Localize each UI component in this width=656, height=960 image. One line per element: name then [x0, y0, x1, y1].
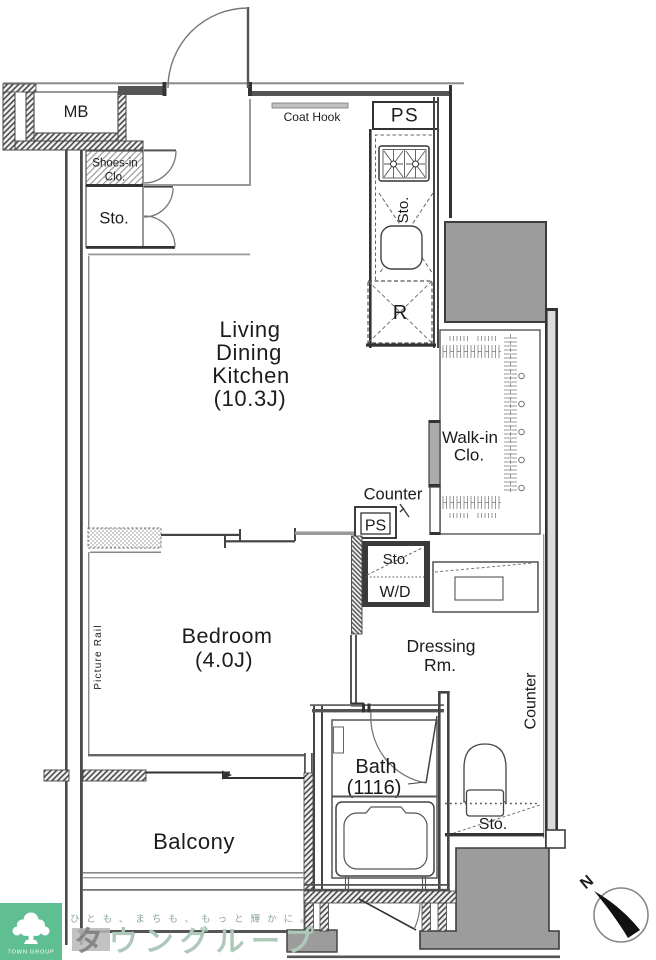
svg-text:Coat Hook: Coat Hook: [284, 110, 342, 124]
svg-text:Dining: Dining: [216, 340, 282, 365]
svg-text:Sto.: Sto.: [395, 197, 412, 224]
svg-text:Dressing: Dressing: [406, 636, 475, 656]
svg-text:ひとも、まちも、もっと輝かに。: ひとも、まちも、もっと輝かに。: [70, 913, 317, 925]
svg-text:Shoes-in: Shoes-in: [92, 158, 137, 170]
svg-text:Counter: Counter: [364, 486, 423, 504]
svg-text:PS: PS: [365, 518, 386, 535]
svg-text:Walk-in: Walk-in: [442, 428, 498, 447]
svg-text:Sto.: Sto.: [479, 816, 507, 833]
svg-text:Balcony: Balcony: [153, 829, 235, 854]
svg-text:Bath: Bath: [355, 756, 396, 778]
svg-text:(10.3J): (10.3J): [214, 386, 287, 411]
svg-text:Kitchen: Kitchen: [212, 363, 290, 388]
svg-text:Counter: Counter: [523, 672, 540, 730]
svg-text:MB: MB: [64, 103, 89, 121]
svg-text:Living: Living: [219, 317, 280, 342]
svg-text:Clo.: Clo.: [105, 172, 125, 184]
svg-text:W/D: W/D: [379, 584, 410, 601]
svg-text:PS: PS: [391, 106, 419, 127]
svg-text:(4.0J): (4.0J): [195, 648, 253, 672]
svg-text:TOWN GROUP: TOWN GROUP: [7, 950, 54, 956]
svg-text:Bedroom: Bedroom: [182, 624, 273, 648]
svg-text:タ: タ: [74, 925, 103, 958]
svg-text:Clo.: Clo.: [454, 446, 484, 465]
svg-text:Rm.: Rm.: [424, 655, 456, 675]
svg-text:Sto.: Sto.: [99, 210, 128, 228]
svg-text:ウングループ: ウングループ: [109, 925, 320, 958]
svg-text:Picture Rail: Picture Rail: [93, 624, 104, 690]
svg-text:R: R: [393, 302, 407, 324]
